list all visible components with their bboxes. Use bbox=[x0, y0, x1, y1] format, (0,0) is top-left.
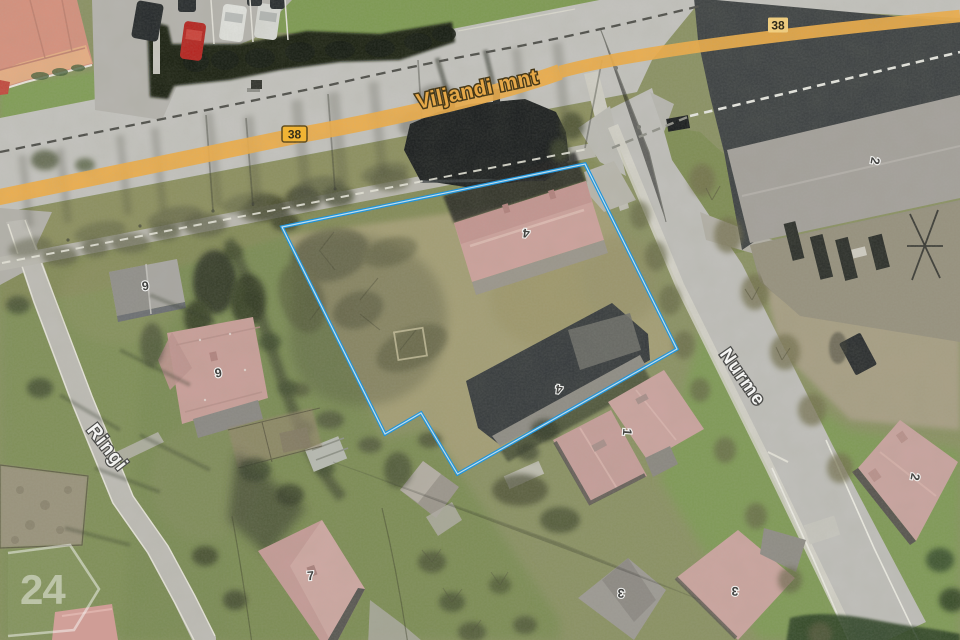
svg-text:24: 24 bbox=[20, 566, 66, 613]
